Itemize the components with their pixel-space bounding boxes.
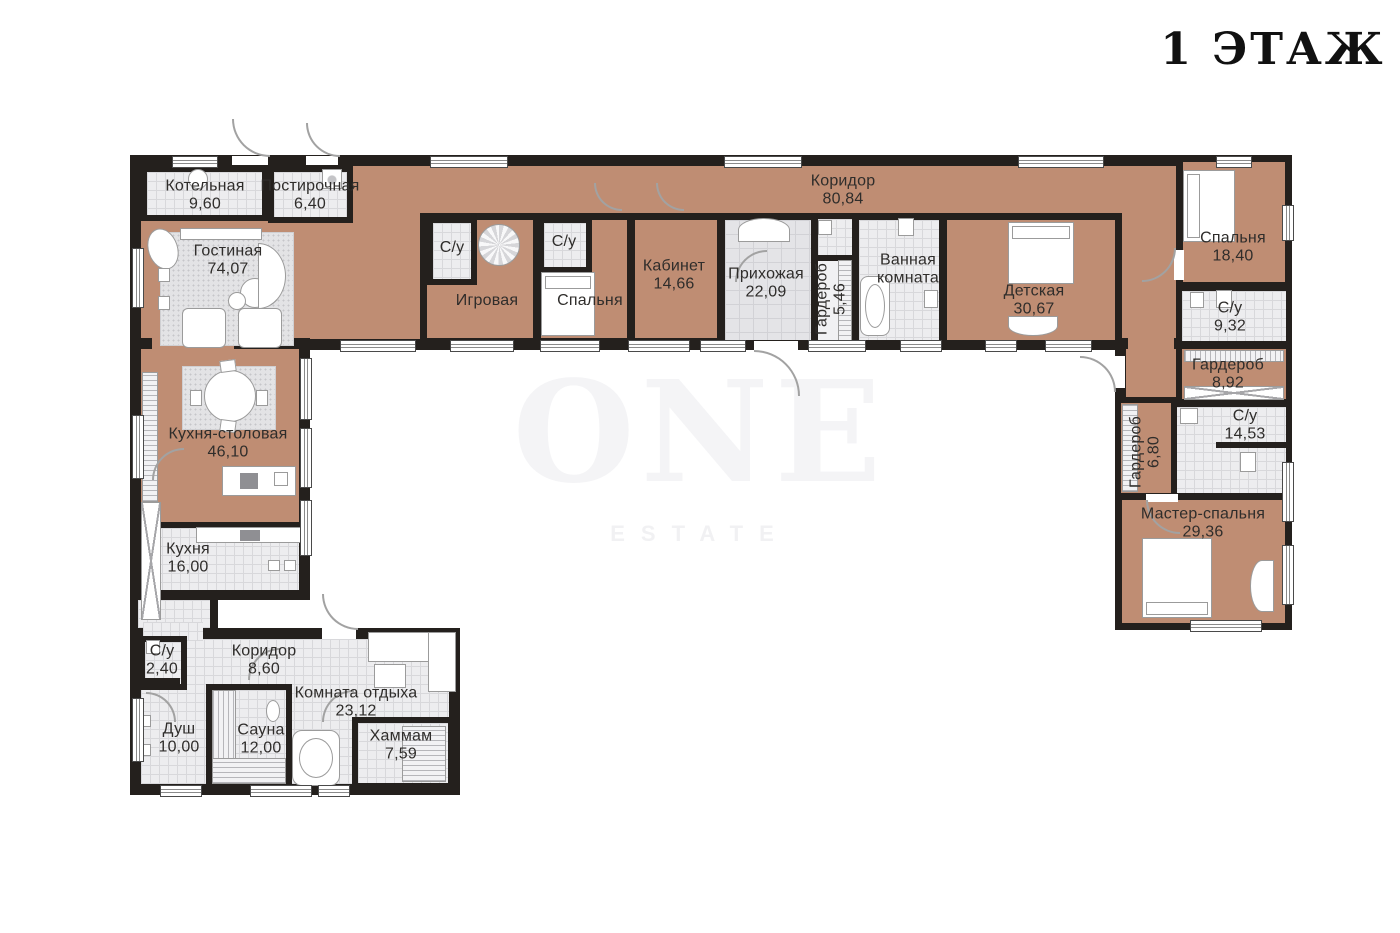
sink-icon xyxy=(1180,408,1198,424)
window xyxy=(1018,156,1104,168)
room-label-garderob-hall: Гардероб5,46 xyxy=(814,263,851,335)
room-label-garderob-892: Гардероб8,92 xyxy=(1192,357,1264,394)
room-label-su-1453: С/у14,53 xyxy=(1224,408,1265,445)
chair-icon xyxy=(190,390,202,406)
chair-icon xyxy=(1250,560,1274,612)
window xyxy=(132,698,144,762)
room-label-garderob-680: Гардероб6,80 xyxy=(1128,416,1165,488)
room-label-vannaya: Ванная комната xyxy=(863,252,953,289)
room-label-koridor-spa: Коридор8,60 xyxy=(232,643,297,680)
window xyxy=(250,785,312,797)
tv-console-icon xyxy=(180,228,262,240)
sink-icon xyxy=(924,290,938,308)
window-courtyard xyxy=(1045,340,1092,352)
pillow-icon xyxy=(1187,174,1200,238)
spiral-stair-icon xyxy=(478,224,520,266)
room-label-gostinaya: Гостиная74,07 xyxy=(194,243,263,280)
hot-tub-inner-icon xyxy=(299,738,333,778)
room-label-hammam: Хаммам7,59 xyxy=(370,728,433,765)
window xyxy=(1216,156,1252,168)
sink-icon xyxy=(1190,292,1204,308)
stool-icon xyxy=(268,560,280,571)
toilet-icon xyxy=(898,218,914,236)
window-courtyard xyxy=(300,358,312,420)
window-courtyard xyxy=(900,340,942,352)
watermark-one: ONE xyxy=(513,363,888,503)
window xyxy=(724,156,802,168)
room-label-igrovaya: Игровая xyxy=(456,292,518,310)
floor-plan: ONE ESTATE 1 ЭТАЖ xyxy=(0,0,1400,933)
sofa-icon xyxy=(428,632,456,692)
armchair-icon xyxy=(238,308,282,348)
coffee-table-icon xyxy=(228,292,246,310)
room-label-master: Мастер-спальня29,36 xyxy=(1141,506,1265,543)
window-courtyard xyxy=(808,340,866,352)
room-label-kabinet: Кабинет14,66 xyxy=(643,258,705,295)
room-label-su-932: С/у9,32 xyxy=(1214,300,1246,337)
room-label-kotelnaya: Котельная9,60 xyxy=(165,178,244,215)
dining-table-icon xyxy=(204,370,256,422)
chair-icon xyxy=(219,359,237,373)
window xyxy=(430,156,508,168)
page-title: 1 ЭТАЖ xyxy=(1158,24,1388,75)
armchair-icon xyxy=(182,308,226,348)
door-arc-detskaya xyxy=(1080,356,1116,392)
window xyxy=(132,415,144,479)
window-courtyard xyxy=(450,340,514,352)
bench-icon xyxy=(738,218,790,242)
hob-icon xyxy=(240,473,258,489)
door-arc-spa-entrance xyxy=(322,594,358,630)
room-label-postirochnaya: Постирочная6,40 xyxy=(260,178,359,215)
window-courtyard xyxy=(700,340,746,352)
window-courtyard xyxy=(340,340,416,352)
stairs-icon xyxy=(141,502,161,620)
door-gap xyxy=(306,156,338,165)
window xyxy=(132,248,144,308)
window xyxy=(1190,620,1262,632)
hob-icon xyxy=(240,530,260,541)
sauna-stove-icon xyxy=(266,700,280,722)
chair-icon xyxy=(256,390,268,406)
room-label-su-spalnya: С/у xyxy=(552,233,577,251)
sink-icon xyxy=(274,472,288,486)
toilet-icon xyxy=(1240,452,1256,472)
window-courtyard xyxy=(628,340,690,352)
passage-corridor-right xyxy=(1128,338,1174,351)
watermark-estate: ESTATE xyxy=(513,521,888,547)
room-label-sauna: Сауна12,00 xyxy=(237,722,284,759)
window xyxy=(318,785,350,797)
window xyxy=(160,785,202,797)
window xyxy=(172,156,218,168)
room-label-su-igrovaya: С/у xyxy=(440,239,465,257)
door-arc-entrance-top xyxy=(232,119,270,157)
door-gap-spa-entrance xyxy=(322,628,356,639)
chair-icon xyxy=(158,296,170,310)
window xyxy=(1282,462,1294,522)
chair-icon xyxy=(158,268,170,282)
window xyxy=(1282,545,1294,605)
room-label-su-240: С/у2,40 xyxy=(146,643,178,680)
window-courtyard xyxy=(540,340,600,352)
pillow-icon xyxy=(1012,226,1070,239)
window-courtyard xyxy=(300,500,312,556)
stool-icon xyxy=(284,560,296,571)
window-courtyard xyxy=(300,428,312,488)
room-label-detskaya: Детская30,67 xyxy=(1004,283,1065,320)
door-gap-main-entrance xyxy=(754,341,798,350)
bathtub-inner-icon xyxy=(865,284,885,328)
room-label-spalnya-right: Спальня18,40 xyxy=(1200,230,1266,267)
door-arc xyxy=(306,123,340,157)
toilet-icon xyxy=(818,220,832,235)
door-gap xyxy=(1174,250,1184,280)
shelving-icon xyxy=(142,372,158,502)
door-gap xyxy=(232,156,268,165)
window-courtyard xyxy=(985,340,1017,352)
watermark: ONE ESTATE xyxy=(513,363,888,547)
room-label-prihozhaya: Прихожая22,09 xyxy=(728,266,804,303)
room-label-komnata-otdyha: Комната отдыха23,12 xyxy=(295,685,418,722)
room-label-kuhnya-stolovaya: Кухня-столовая46,10 xyxy=(169,426,288,463)
pillow-icon xyxy=(545,276,591,289)
pillow-icon xyxy=(1146,602,1208,615)
room-label-koridor-top: Коридор80,84 xyxy=(811,173,876,210)
room-label-spalnya-top: Спальня xyxy=(557,292,623,310)
room-label-dush: Душ10,00 xyxy=(158,721,199,758)
sauna-bench-icon xyxy=(212,758,286,784)
room-label-kuhnya: Кухня16,00 xyxy=(166,541,210,578)
window xyxy=(1282,205,1294,241)
